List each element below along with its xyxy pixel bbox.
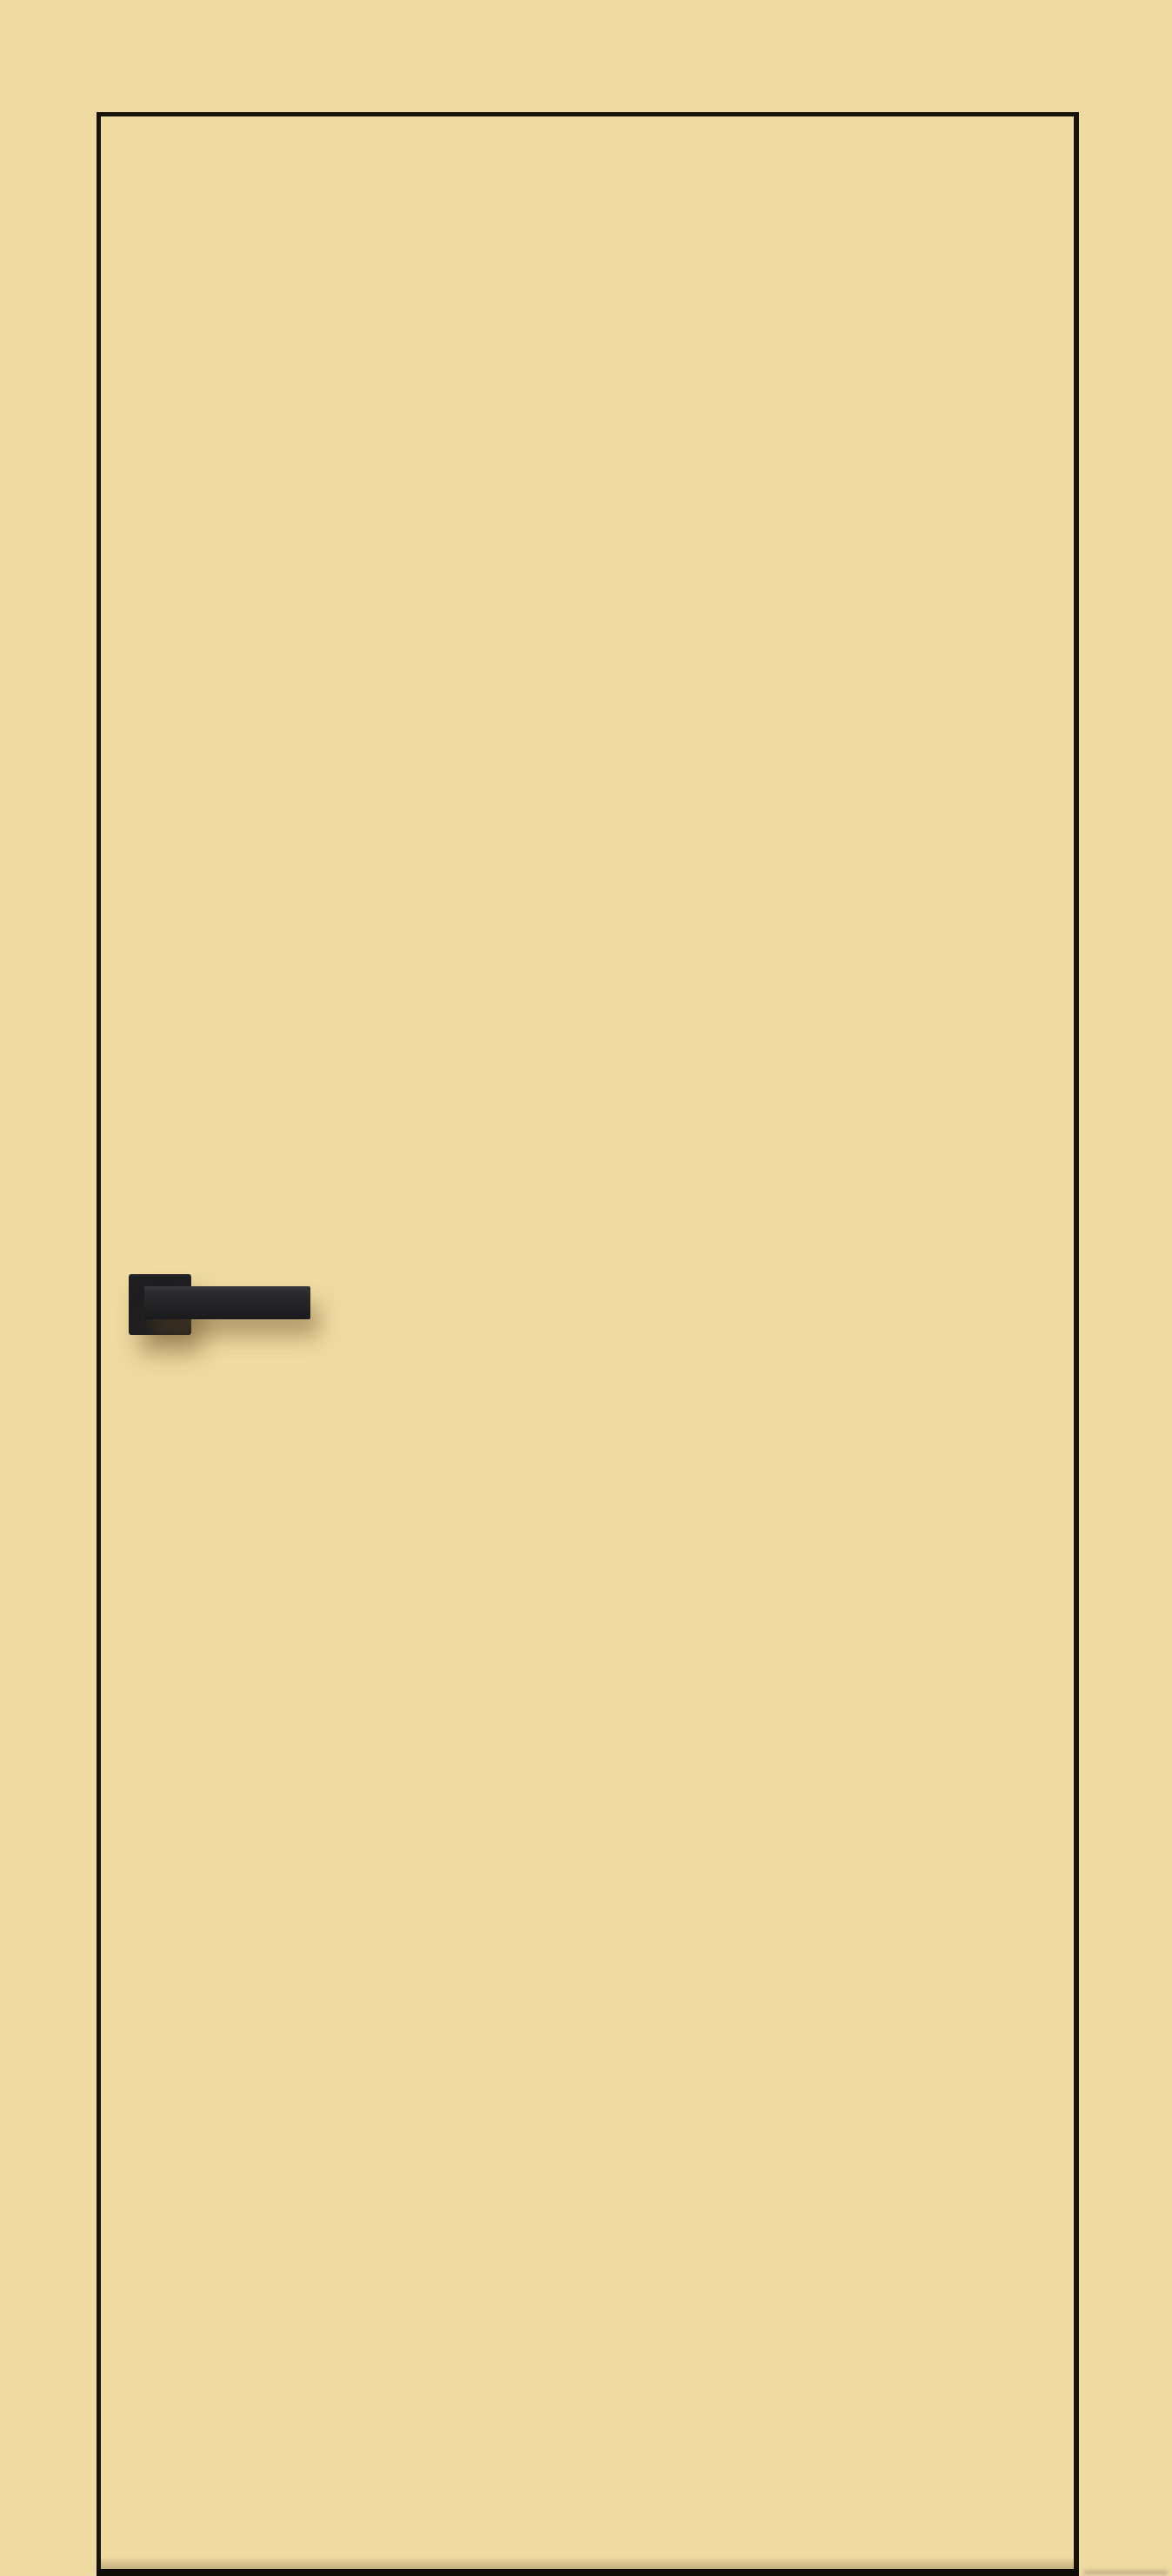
handle-lever [144,1286,310,1319]
door-bottom-gap [97,2569,1079,2576]
door-product-photo [0,0,1172,2576]
floor-reflection [1084,2570,1168,2575]
door-handle [129,1274,372,1387]
floor-shadow [101,2557,1074,2569]
